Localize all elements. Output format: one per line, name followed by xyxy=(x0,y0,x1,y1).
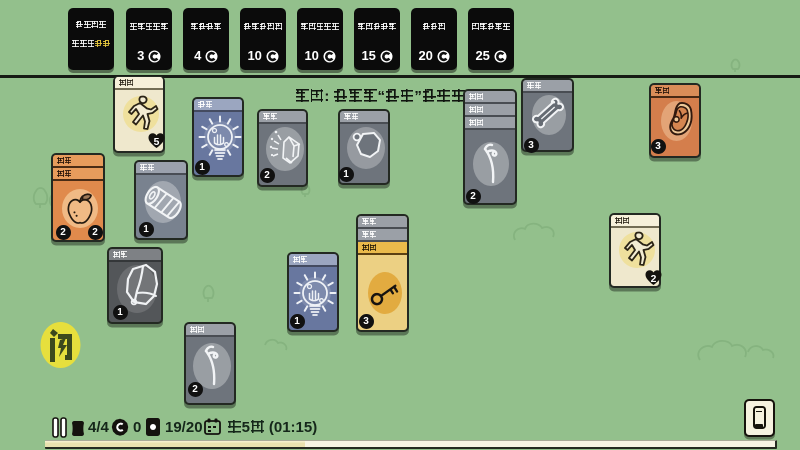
svg-text:2: 2 xyxy=(650,274,656,285)
svg-text:5: 5 xyxy=(153,137,159,148)
